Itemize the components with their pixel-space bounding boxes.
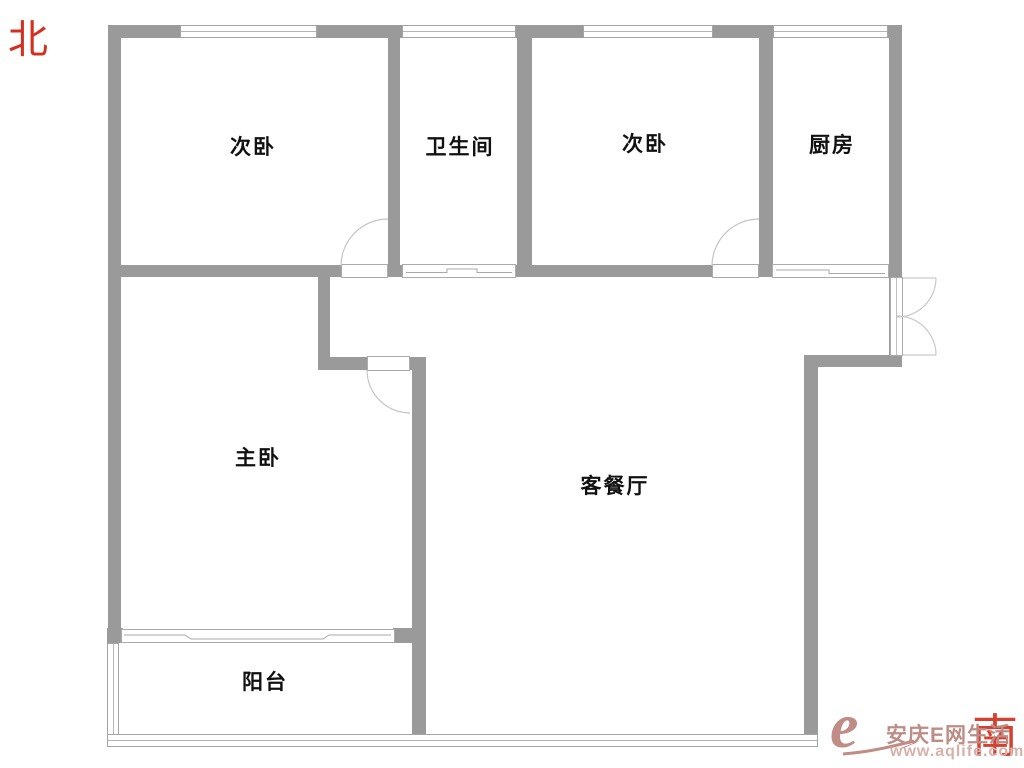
wall-left (108, 25, 121, 643)
window-pane-line (774, 31, 887, 32)
door-opening-bedroom-nw (341, 264, 388, 278)
door-arc-bedroom-ne-icon (712, 219, 759, 266)
window-pane-line (181, 31, 316, 32)
watermark-url: www.aqlife.com (890, 743, 1024, 761)
entry-door-band (890, 277, 903, 356)
door-symbols-layer (0, 0, 1024, 768)
room-label-balcony: 阳台 (242, 666, 288, 696)
door-arc-bedroom-nw-icon (341, 219, 388, 266)
door-arc-master-icon (367, 370, 410, 413)
watermark-logo: e (830, 694, 858, 758)
wall-hall-stub-horizontal (318, 357, 367, 370)
room-label-living-dining: 客餐厅 (581, 470, 650, 500)
wall-living-right (804, 355, 818, 747)
window-bedroom-nw (180, 25, 317, 38)
floor-plan: 次卧 卫生间 次卧 厨房 主卧 客餐厅 阳台 北 南 e 安庆E网生活 www.… (0, 0, 1024, 768)
sliding-door-bathroom (402, 264, 516, 278)
wall-bottom-right (804, 355, 902, 367)
room-label-bedroom-nw: 次卧 (230, 131, 276, 161)
room-label-bathroom: 卫生间 (426, 131, 495, 161)
room-label-kitchen: 厨房 (809, 129, 855, 159)
wall-balcony-post-right (393, 628, 426, 643)
window-kitchen (773, 25, 888, 38)
window-bedroom-ne (583, 25, 713, 38)
window-pane-line (108, 740, 817, 741)
window-bathroom (402, 25, 516, 38)
room-label-master-bedroom: 主卧 (235, 442, 281, 472)
door-opening-master (367, 356, 410, 371)
sliding-door-balcony (121, 629, 395, 643)
wall-master-right (412, 357, 426, 747)
door-opening-bedroom-ne (712, 264, 759, 278)
wall-kitchen-left (759, 38, 773, 265)
window-pane-line (113, 644, 114, 734)
wall-bathroom-left (388, 38, 400, 265)
window-balcony-left (107, 643, 119, 735)
window-bottom (107, 734, 818, 747)
window-pane-line (403, 31, 515, 32)
room-label-bedroom-ne: 次卧 (622, 128, 668, 158)
wall-bathroom-right (517, 38, 532, 265)
sliding-door-kitchen (772, 264, 889, 278)
entry-door-line (896, 278, 897, 355)
window-pane-line (584, 31, 712, 32)
compass-north-label: 北 (8, 20, 48, 60)
